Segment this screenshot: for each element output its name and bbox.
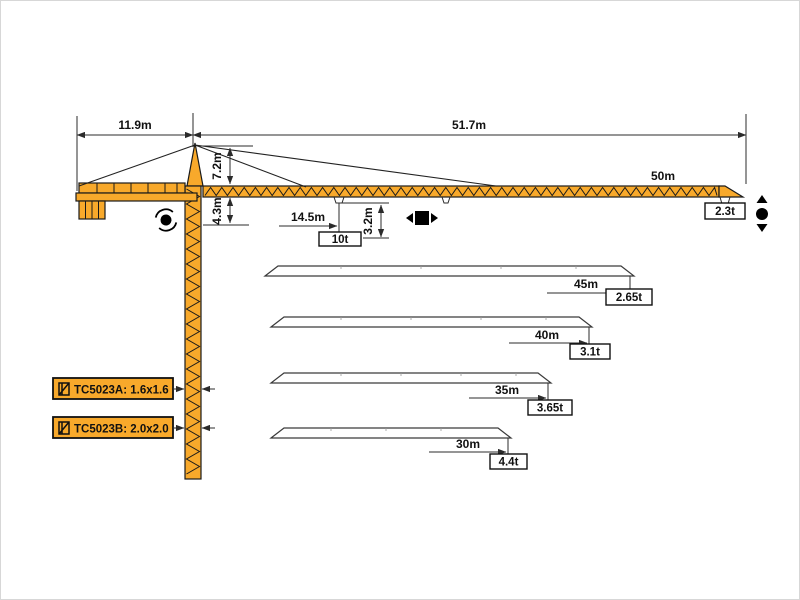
jib-cable-long bbox=[195, 145, 496, 186]
model-a-label: TC5023A: 1.6x1.6 bbox=[74, 385, 169, 397]
tip-load-label-50m: 2.3t bbox=[715, 206, 735, 218]
trolley-hook-2 bbox=[442, 197, 450, 203]
variant-load-label: 3.1t bbox=[580, 347, 600, 359]
main-jib-length-label: 50m bbox=[651, 169, 675, 183]
jib-silhouette-45 bbox=[265, 266, 634, 276]
jib-variant-45: 45m 2.65t bbox=[265, 266, 652, 305]
counter-jib-panels bbox=[79, 183, 185, 193]
under-jib-height-label: 4.3m bbox=[210, 197, 224, 224]
diagram-canvas: 11.9m 51.7m 7.2m 4.3m 14.5m bbox=[1, 1, 799, 599]
trolley-hook-1 bbox=[334, 197, 344, 203]
variant-load-label: 3.65t bbox=[537, 403, 563, 415]
slewing-icon bbox=[154, 207, 178, 233]
counter-jib-cable bbox=[79, 145, 195, 186]
tower-head-height-label: 7.2m bbox=[210, 152, 224, 179]
jib-variant-40: 40m 3.1t bbox=[271, 317, 610, 359]
variant-load-label: 2.65t bbox=[616, 292, 642, 304]
variant-length-label: 40m bbox=[535, 328, 559, 342]
jib-variant-35: 35m 3.65t bbox=[271, 373, 572, 415]
jib-span-label: 51.7m bbox=[452, 118, 486, 132]
hook-icon bbox=[756, 195, 768, 232]
max-load-label: 10t bbox=[332, 234, 349, 246]
hook-drop-label: 3.2m bbox=[361, 207, 375, 234]
counter-jib-beam bbox=[76, 193, 197, 201]
tower-head bbox=[187, 143, 203, 186]
trolley-distance-label: 14.5m bbox=[291, 210, 325, 224]
jib-silhouette-35 bbox=[271, 373, 551, 383]
top-dimensions bbox=[77, 113, 746, 191]
trolley-icon bbox=[406, 211, 438, 225]
variant-load-label: 4.4t bbox=[499, 457, 519, 469]
crane-load-diagram: 11.9m 51.7m 7.2m 4.3m 14.5m bbox=[0, 0, 800, 600]
model-b-label: TC5023B: 2.0x2.0 bbox=[74, 424, 169, 436]
variant-length-label: 30m bbox=[456, 437, 480, 451]
jib-variant-30: 30m 4.4t bbox=[271, 428, 527, 469]
variant-length-label: 35m bbox=[495, 383, 519, 397]
jib-silhouette-40 bbox=[271, 317, 592, 327]
tie-cables bbox=[79, 145, 496, 187]
variant-length-label: 45m bbox=[574, 277, 598, 291]
counter-jib-length-label: 11.9m bbox=[118, 118, 151, 132]
jib-tip bbox=[719, 186, 743, 197]
